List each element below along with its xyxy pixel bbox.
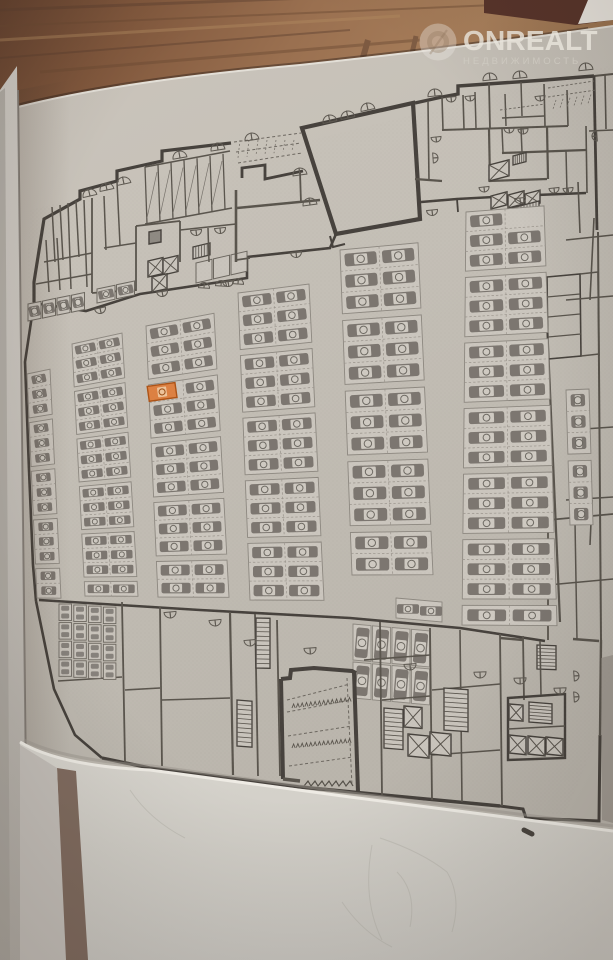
svg-text:НЕДВИЖИМОСТЬ: НЕДВИЖИМОСТЬ (463, 56, 581, 67)
svg-text:ONREALT: ONREALT (463, 25, 598, 56)
